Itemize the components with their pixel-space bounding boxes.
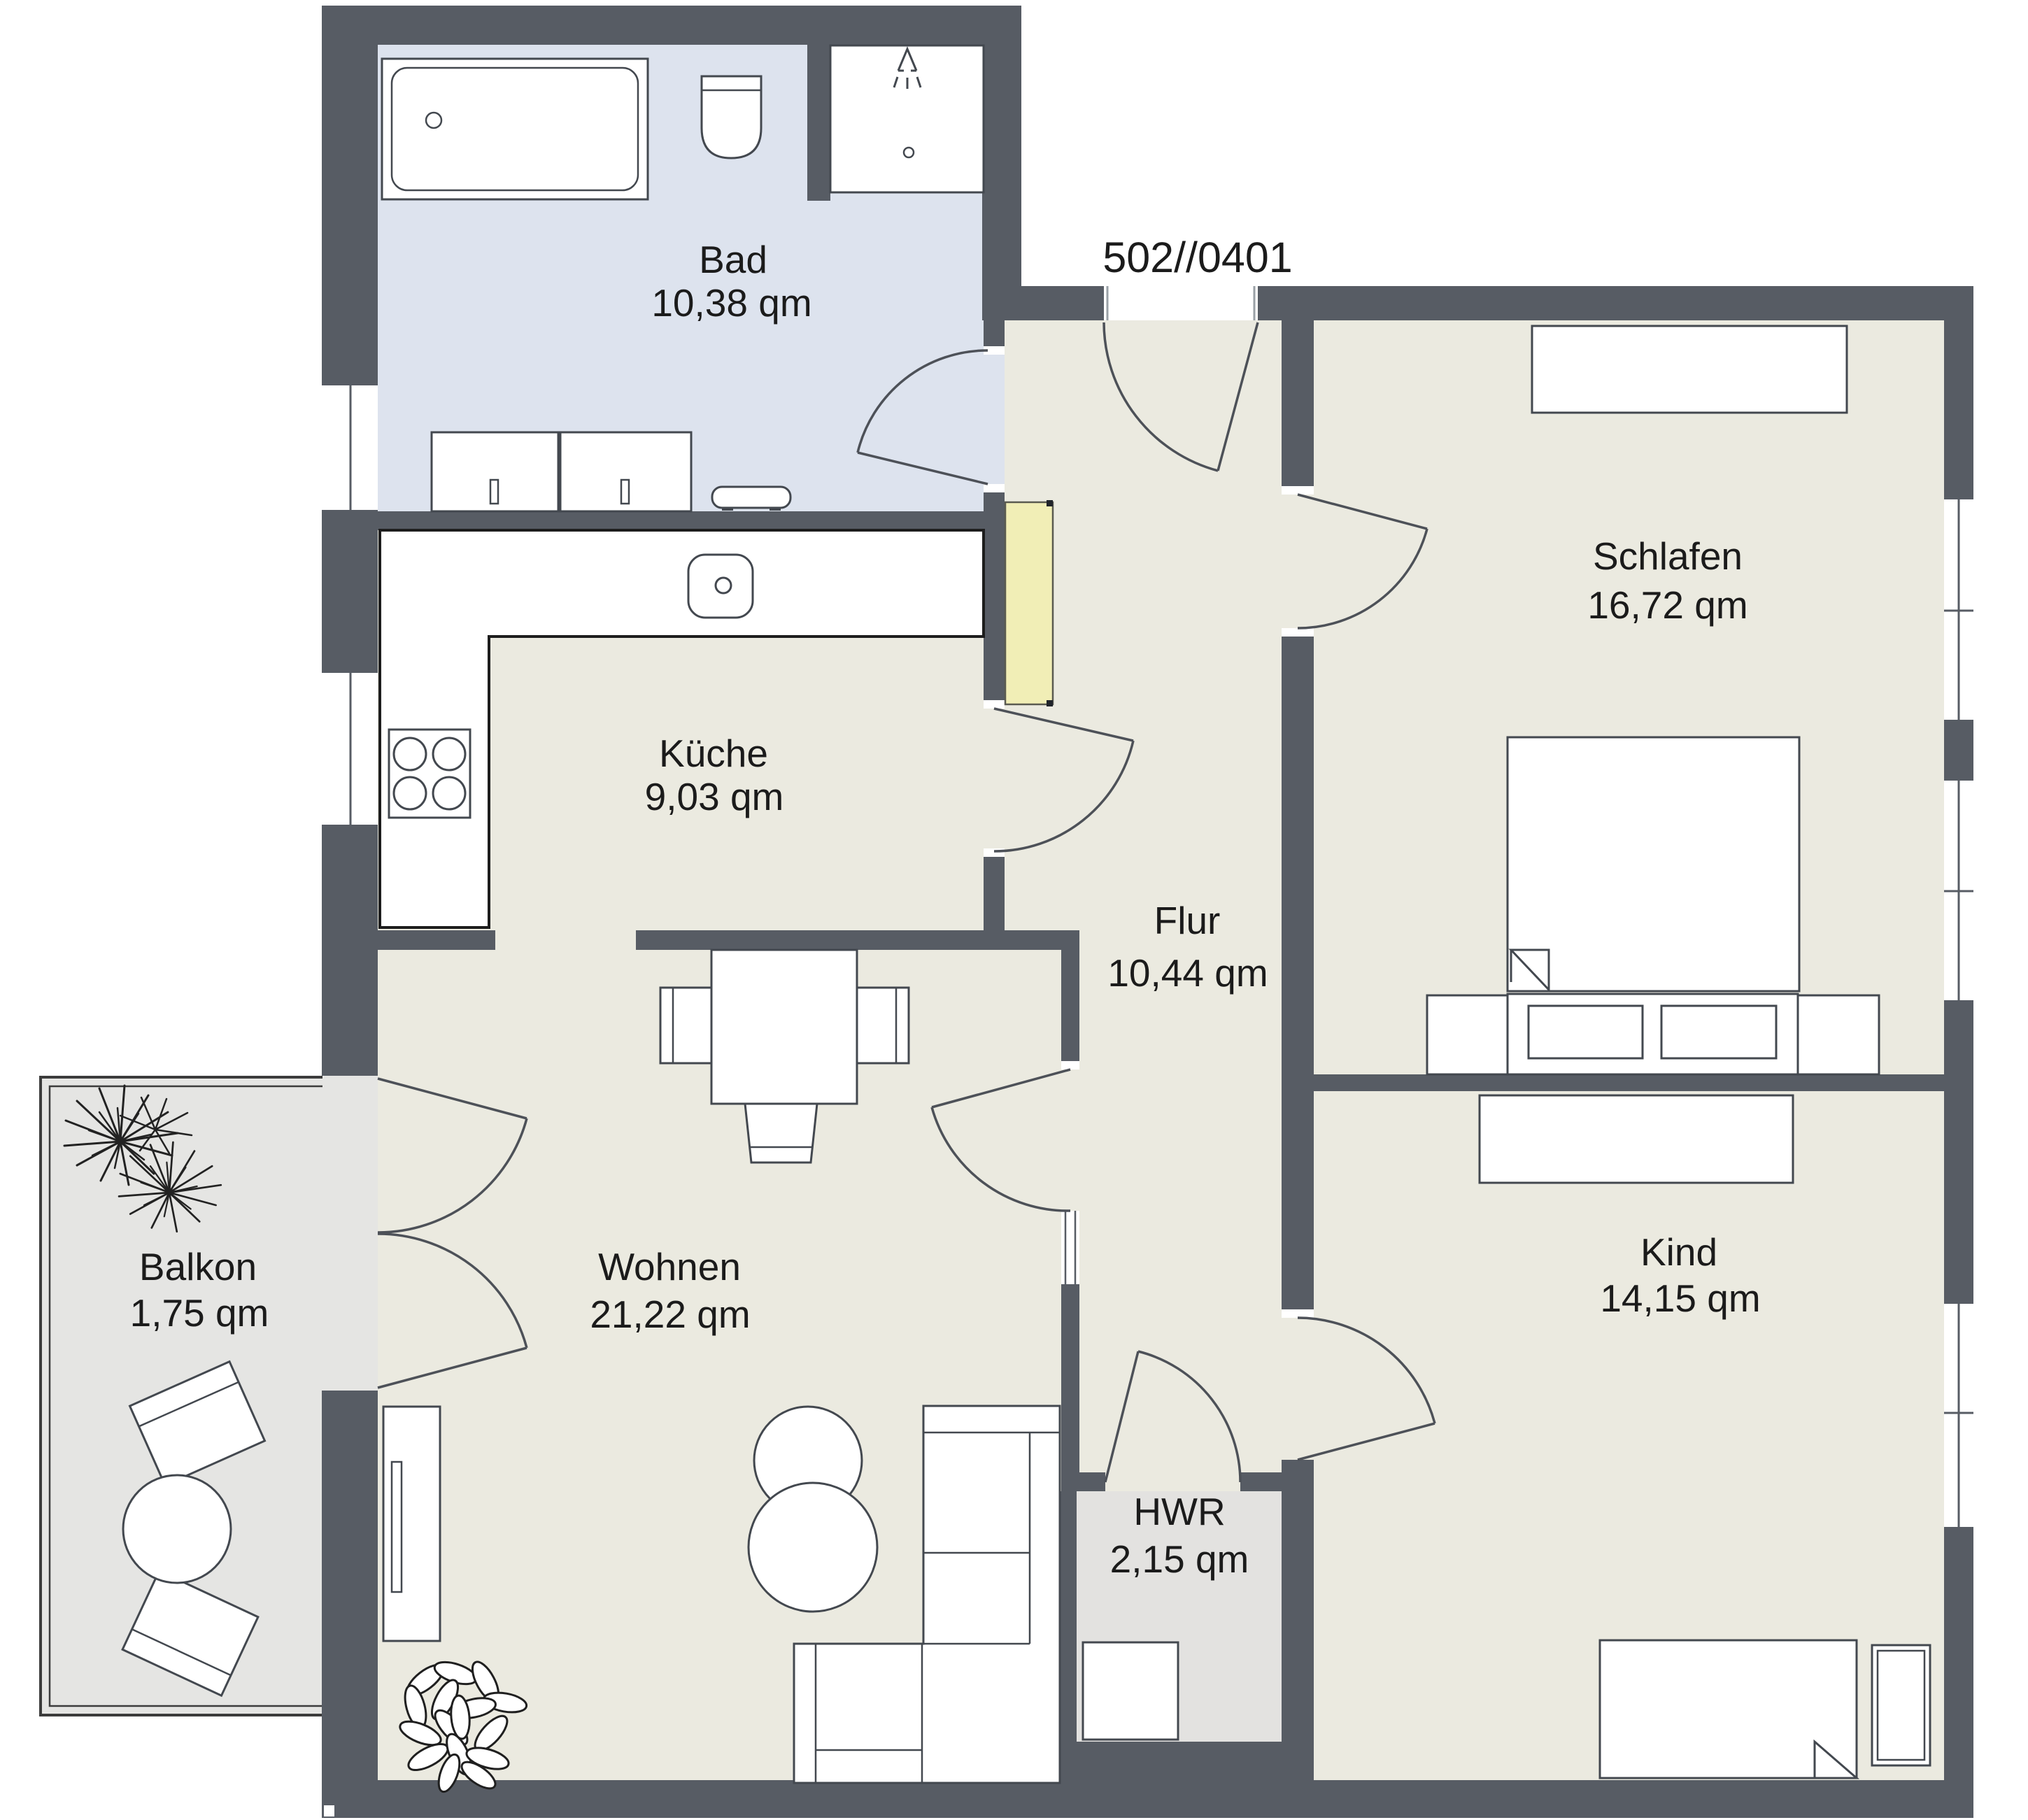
svg-text:502//0401: 502//0401 — [1102, 234, 1292, 281]
svg-text:2,15 qm: 2,15 qm — [1110, 1537, 1249, 1581]
svg-text:10,44 qm: 10,44 qm — [1107, 951, 1268, 995]
svg-text:1,75 qm: 1,75 qm — [130, 1291, 269, 1335]
svg-text:Bad: Bad — [699, 238, 767, 281]
svg-text:9,03 qm: 9,03 qm — [645, 775, 784, 818]
svg-text:Küche: Küche — [659, 732, 768, 775]
svg-text:Wohnen: Wohnen — [598, 1245, 741, 1288]
svg-text:Flur: Flur — [1154, 899, 1221, 942]
svg-text:10,38 qm: 10,38 qm — [651, 281, 811, 325]
svg-text:Schlafen: Schlafen — [1593, 534, 1743, 578]
svg-text:21,22 qm: 21,22 qm — [590, 1293, 750, 1336]
svg-text:HWR: HWR — [1133, 1490, 1225, 1533]
svg-text:Balkon: Balkon — [139, 1245, 257, 1288]
svg-text:Kind: Kind — [1640, 1230, 1717, 1274]
svg-text:16,72 qm: 16,72 qm — [1587, 583, 1747, 627]
svg-text:14,15 qm: 14,15 qm — [1600, 1277, 1760, 1320]
